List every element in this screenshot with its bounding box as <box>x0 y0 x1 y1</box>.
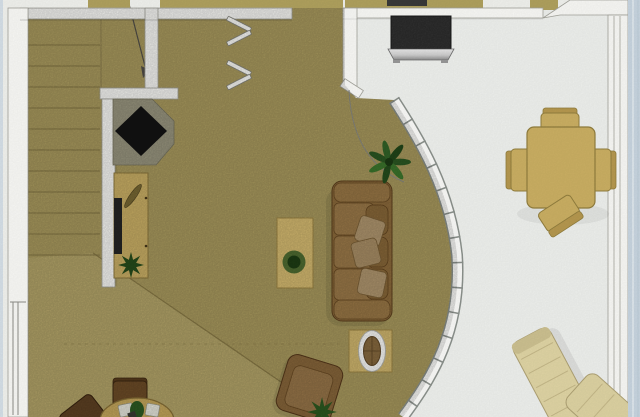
floor-plan-svg <box>0 0 640 417</box>
scan-grain <box>0 0 640 417</box>
scanned-floor-plan-page <box>0 0 640 417</box>
